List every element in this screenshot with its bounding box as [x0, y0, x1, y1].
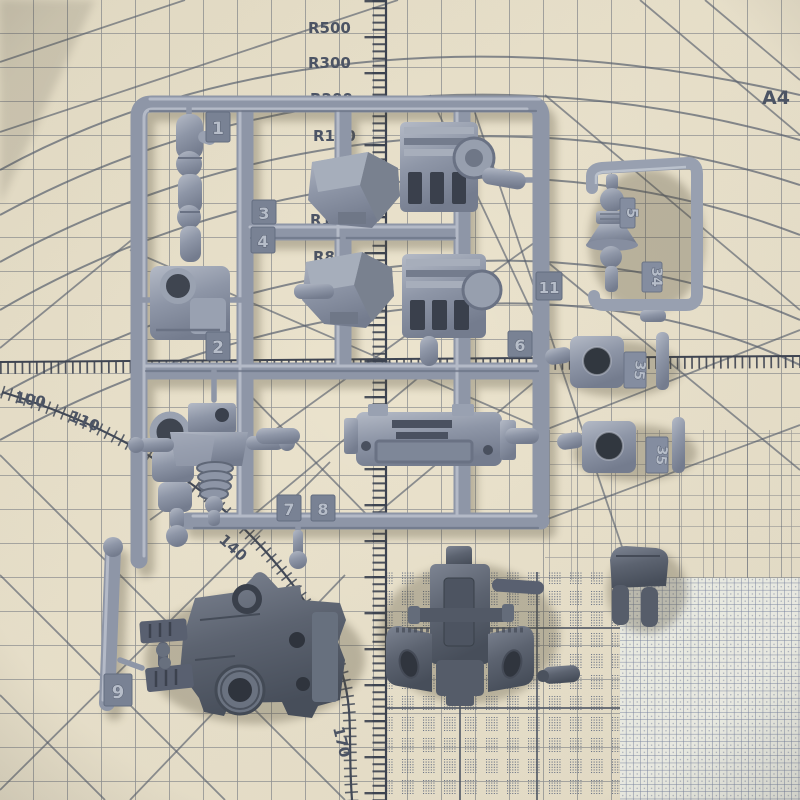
gate-tag-1: 1 [206, 112, 230, 142]
gate-tag-1-number: 1 [212, 119, 224, 139]
gate-tag-4: 4 [251, 227, 275, 253]
gate-tag-11: 11 [536, 272, 562, 300]
gate-tag-2: 2 [206, 332, 230, 360]
gate-tag-3: 3 [252, 200, 276, 224]
photo-model-kit-sprue-on-cutting-mat: R500 R300 R200 R150 R100 R80 100 110 140… [0, 0, 800, 800]
gate-tag-35b-number: 35 [652, 445, 670, 466]
part-connector-frame [344, 404, 516, 466]
gate-tag-11-number: 11 [539, 279, 560, 297]
gate-tag-4-number: 4 [257, 232, 268, 251]
gate-tag-34: 34 [642, 262, 664, 292]
gate-tag-8: 8 [311, 495, 335, 521]
gate-tag-8-number: 8 [317, 500, 328, 519]
gate-tag-35a-number: 35 [630, 360, 648, 381]
gate-tag-6: 6 [508, 331, 532, 357]
photo-canvas: R500 R300 R200 R150 R100 R80 100 110 140… [0, 0, 800, 800]
gate-tag-6-number: 6 [514, 336, 525, 355]
gate-tag-9-number: 9 [112, 682, 125, 703]
gate-tag-7-number: 7 [283, 500, 294, 519]
gate-tag-5-number: 5 [623, 208, 641, 218]
part-shoulder-joint [150, 266, 230, 340]
gate-tag-34-number: 34 [648, 267, 664, 287]
gate-tag-3-number: 3 [258, 204, 269, 223]
gate-tag-9: 9 [104, 674, 132, 706]
gate-tag-7: 7 [277, 495, 301, 521]
gate-tag-2-number: 2 [212, 338, 224, 358]
